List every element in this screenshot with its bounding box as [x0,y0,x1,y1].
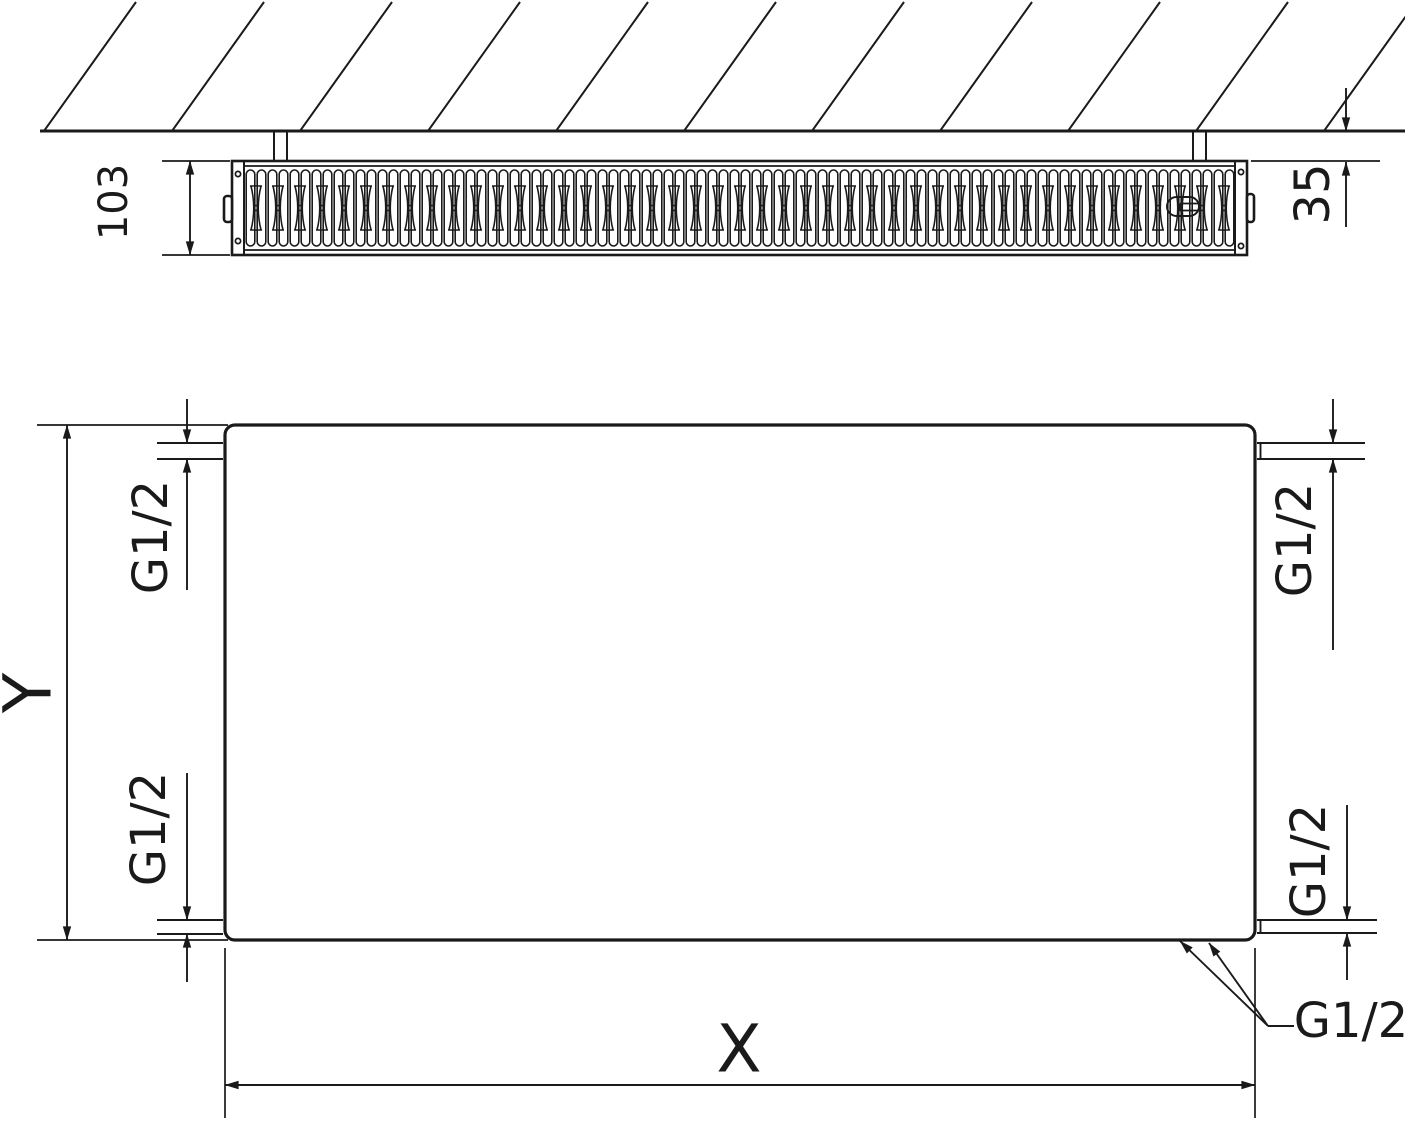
drawing-canvas: 103 35 G1/2 G1/2 G1/2 [0,0,1427,1125]
width-label: X [716,1011,761,1088]
mounting-bracket-left [274,131,287,162]
dim-height-y: Y [0,425,228,940]
thread-label-leader: G1/2 [1294,993,1408,1049]
thread-label-bottom-right: G1/2 [1281,804,1337,918]
leader-bottom-connections: G1/2 [1180,941,1408,1049]
side-tab-left [224,196,232,222]
convector-fins [245,169,1234,247]
wall-hatch [44,2,1416,131]
radiator-front-view [225,425,1255,940]
height-label: Y [0,672,67,714]
wall-distance-label: 35 [1285,163,1341,224]
thread-label-top-left: G1/2 [123,480,179,594]
connection-stub-top-right [1257,443,1365,459]
radiator-technical-drawing: 103 35 G1/2 G1/2 G1/2 [0,0,1427,1125]
mounting-bracket-right [1193,131,1206,162]
thread-label-bottom-left: G1/2 [121,772,177,886]
connection-stub-top-left [157,443,223,459]
connection-stub-bottom-right [1257,920,1377,933]
connection-stub-bottom-left [157,920,223,934]
thread-label-top-right: G1/2 [1267,483,1323,597]
side-tab-right [1247,194,1254,222]
dim-depth: 103 [91,161,230,255]
dim-thread-bottom-left: G1/2 [121,772,187,982]
depth-label: 103 [91,164,137,240]
dim-width-x: X [225,948,1255,1118]
radiator-top-view [224,161,1254,255]
dim-thread-top-right: G1/2 [1267,399,1333,650]
dim-thread-top-left: G1/2 [123,399,187,594]
dim-wall-distance: 35 [1251,88,1380,227]
dim-thread-bottom-right: G1/2 [1281,804,1347,980]
